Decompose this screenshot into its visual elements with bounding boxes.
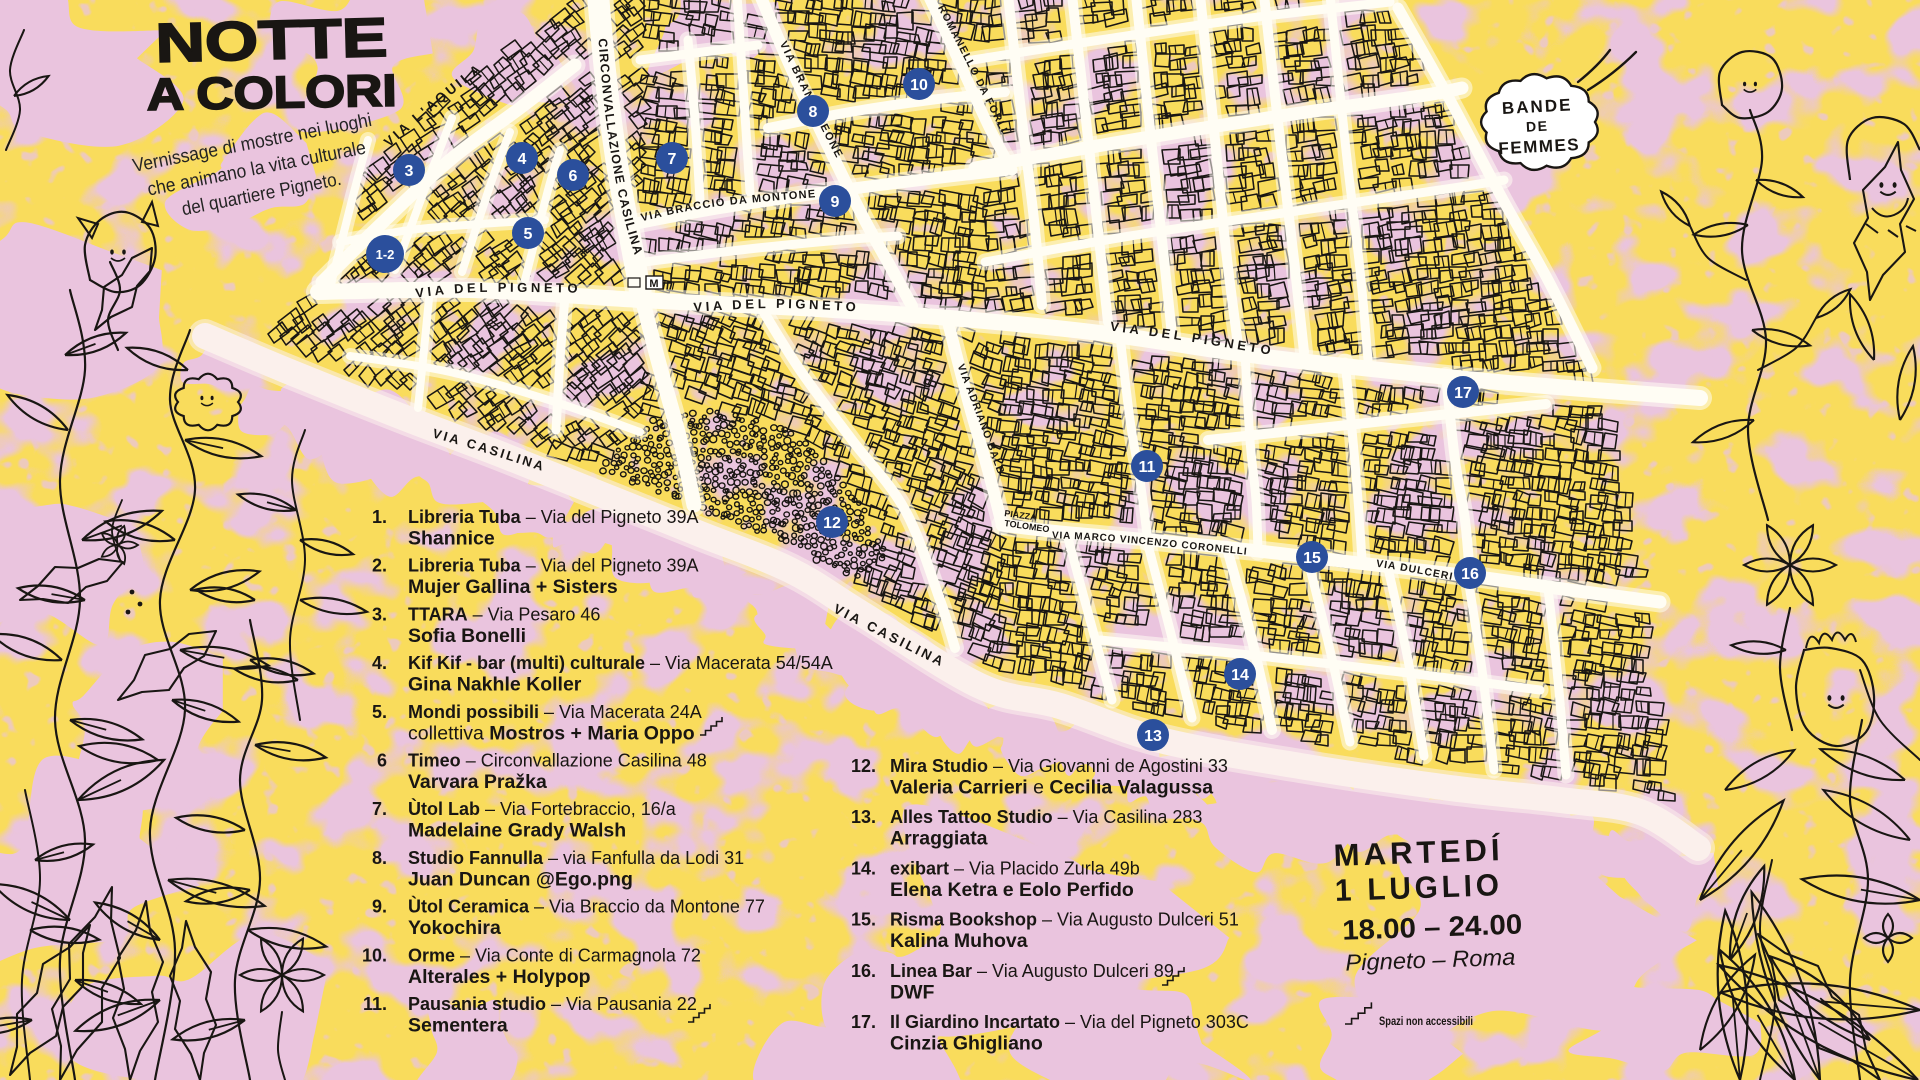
svg-text:DE: DE: [1526, 118, 1549, 135]
svg-text:7: 7: [668, 151, 677, 168]
svg-text:MARTEDÍ: MARTEDÍ: [1333, 832, 1504, 873]
svg-text:17.: 17.: [851, 1012, 876, 1032]
svg-text:Cinzia Ghigliano: Cinzia Ghigliano: [890, 1033, 1043, 1055]
svg-text:Shannice: Shannice: [408, 528, 495, 550]
svg-text:7.: 7.: [372, 799, 387, 819]
svg-text:15.: 15.: [851, 910, 876, 930]
svg-text:Valeria Carrieri e Cecilia Val: Valeria Carrieri e Cecilia Valagussa: [890, 777, 1213, 799]
svg-text:5: 5: [524, 226, 533, 243]
svg-text:NOTTE: NOTTE: [155, 6, 389, 74]
svg-text:8: 8: [809, 104, 818, 121]
svg-text:Mujer Gallina + Sisters: Mujer Gallina + Sisters: [408, 576, 618, 598]
svg-text:Sementera: Sementera: [408, 1015, 508, 1037]
svg-text:Pausania studio – Via Pausania: Pausania studio – Via Pausania 22: [408, 994, 697, 1014]
svg-text:11: 11: [1139, 459, 1156, 476]
svg-text:6: 6: [569, 168, 578, 185]
svg-text:1-2: 1-2: [376, 247, 395, 262]
svg-text:13: 13: [1144, 728, 1162, 745]
svg-text:BANDE: BANDE: [1502, 95, 1573, 118]
svg-text:Alles Tattoo Studio – Via Casi: Alles Tattoo Studio – Via Casilina 283: [890, 807, 1202, 827]
svg-text:14: 14: [1231, 667, 1249, 684]
svg-text:9.: 9.: [372, 897, 387, 917]
svg-text:Spazi non accessibili: Spazi non accessibili: [1379, 1014, 1473, 1028]
svg-text:M: M: [649, 278, 658, 290]
svg-text:Mira Studio – Via Giovanni de: Mira Studio – Via Giovanni de Agostini 3…: [890, 756, 1228, 776]
svg-text:Kalina Muhova: Kalina Muhova: [890, 930, 1028, 952]
svg-text:15: 15: [1303, 550, 1321, 567]
svg-text:17: 17: [1454, 385, 1472, 402]
svg-text:16.: 16.: [851, 961, 876, 981]
svg-text:Kif Kif - bar (multi) cultural: Kif Kif - bar (multi) culturale – Via Ma…: [408, 653, 833, 673]
svg-text:4: 4: [518, 151, 527, 168]
svg-text:12: 12: [823, 515, 841, 532]
svg-text:2.: 2.: [372, 556, 387, 576]
svg-text:Ùtol Lab – Via Fortebraccio, 1: Ùtol Lab – Via Fortebraccio, 16/a: [408, 798, 677, 819]
svg-text:Varvara Pražka: Varvara Pražka: [408, 771, 547, 793]
svg-text:collettiva Mostros + Maria Opp: collettiva Mostros + Maria Oppo: [408, 722, 695, 744]
svg-text:Sofia Bonelli: Sofia Bonelli: [408, 625, 526, 647]
svg-text:Elena Ketra e Eolo Perfido: Elena Ketra e Eolo Perfido: [890, 879, 1134, 901]
svg-text:Madelaine Grady Walsh: Madelaine Grady Walsh: [408, 820, 626, 842]
svg-text:Arraggiata: Arraggiata: [890, 828, 988, 850]
svg-text:Linea Bar – Via Augusto Dulcer: Linea Bar – Via Augusto Dulceri 89: [890, 961, 1174, 981]
svg-text:Orme – Via Conte di Carmagnola: Orme – Via Conte di Carmagnola 72: [408, 945, 701, 965]
svg-text:14.: 14.: [851, 858, 876, 878]
svg-text:13.: 13.: [851, 807, 876, 827]
svg-text:Risma Bookshop – Via Augusto D: Risma Bookshop – Via Augusto Dulceri 51: [890, 910, 1239, 930]
svg-text:TTARA – Via Pesaro 46: TTARA – Via Pesaro 46: [408, 604, 600, 624]
svg-text:10: 10: [910, 77, 928, 94]
svg-text:12.: 12.: [851, 756, 876, 776]
svg-text:1 LUGLIO: 1 LUGLIO: [1334, 867, 1503, 908]
svg-text:18.00 – 24.00: 18.00 – 24.00: [1342, 908, 1523, 945]
svg-text:10.: 10.: [362, 945, 387, 965]
svg-text:Juan Duncan @Ego.png: Juan Duncan @Ego.png: [408, 868, 633, 890]
svg-text:Alterales + Holypop: Alterales + Holypop: [408, 966, 591, 988]
svg-text:Libreria Tuba – Via del Pignet: Libreria Tuba – Via del Pigneto 39A: [408, 507, 699, 527]
svg-text:DWF: DWF: [890, 981, 934, 1003]
svg-text:3: 3: [405, 163, 414, 180]
svg-text:Yokochira: Yokochira: [408, 917, 501, 939]
svg-text:1.: 1.: [372, 507, 387, 527]
svg-text:5.: 5.: [372, 702, 387, 722]
svg-text:11.: 11.: [363, 994, 387, 1014]
svg-text:16: 16: [1461, 566, 1479, 583]
svg-text:3.: 3.: [372, 604, 387, 624]
svg-text:Ùtol Ceramica – Via Braccio da: Ùtol Ceramica – Via Braccio da Montone 7…: [408, 896, 765, 917]
svg-text:Gina Nakhle Koller: Gina Nakhle Koller: [408, 674, 582, 696]
svg-text:9: 9: [831, 194, 840, 211]
svg-text:Mondi possibili – Via Macerata: Mondi possibili – Via Macerata 24A: [408, 702, 702, 722]
svg-text:Timeo – Circonvallazione Casil: Timeo – Circonvallazione Casilina 48: [408, 751, 707, 771]
svg-text:exibart – Via Placido Zurla 49: exibart – Via Placido Zurla 49b: [890, 858, 1140, 878]
svg-text:Il Giardino Incartato – Via de: Il Giardino Incartato – Via del Pigneto …: [890, 1012, 1249, 1032]
svg-text:Libreria Tuba – Via del Pignet: Libreria Tuba – Via del Pigneto 39A: [408, 556, 699, 576]
svg-text:6: 6: [377, 751, 387, 771]
svg-text:4.: 4.: [372, 653, 387, 673]
svg-text:8.: 8.: [372, 848, 387, 868]
svg-text:Studio Fannulla – via Fanfulla: Studio Fannulla – via Fanfulla da Lodi 3…: [408, 848, 744, 868]
